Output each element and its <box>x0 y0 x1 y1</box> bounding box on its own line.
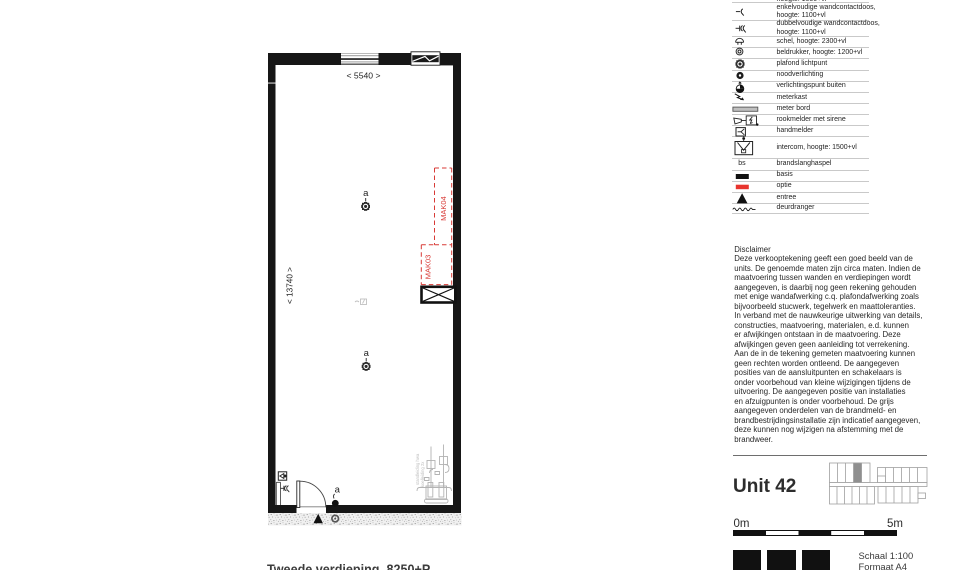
svg-text:< 13740 >: < 13740 > <box>285 267 294 304</box>
svg-text:a: a <box>364 348 370 359</box>
svg-text:a: a <box>335 485 341 496</box>
svg-text:MAK03: MAK03 <box>423 255 432 280</box>
svg-text:koelleiding 2x: koelleiding 2x <box>420 461 425 487</box>
